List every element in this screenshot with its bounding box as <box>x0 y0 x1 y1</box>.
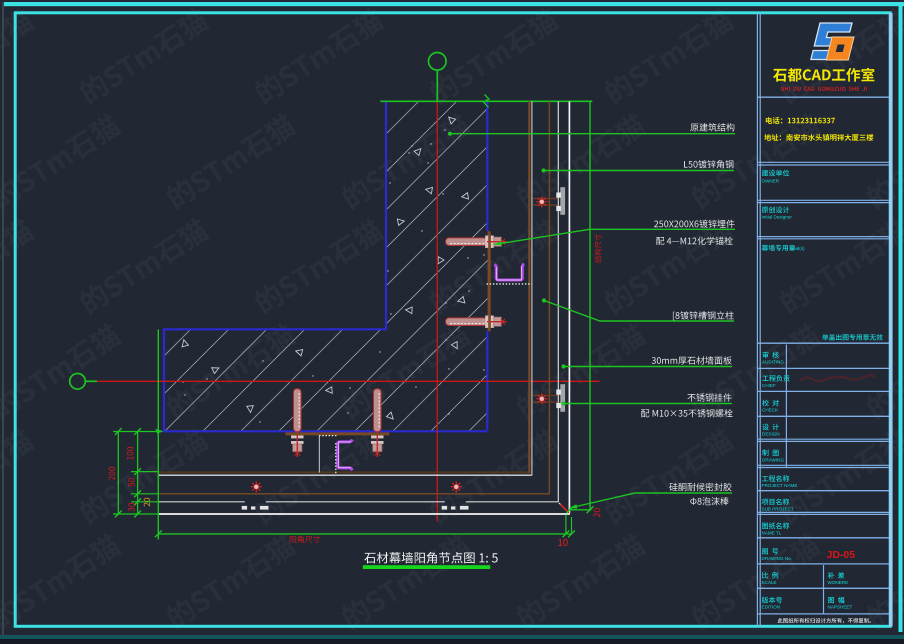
svg-text:DESIGN: DESIGN <box>762 432 780 437</box>
svg-text:PROJECT NAME: PROJECT NAME <box>762 483 798 488</box>
svg-text:WONERE: WONERE <box>828 580 849 585</box>
svg-text:JD-05: JD-05 <box>827 549 856 561</box>
svg-text:CHIEF: CHIEF <box>762 383 776 388</box>
svg-text:NAME TL: NAME TL <box>762 530 782 535</box>
svg-text:Seal(s): Seal(s) <box>790 246 805 251</box>
svg-text:NAPSHEET: NAPSHEET <box>828 605 853 610</box>
svg-text:SCALE: SCALE <box>762 580 777 585</box>
svg-text:OWNER: OWNER <box>762 179 780 184</box>
svg-text:CHECK: CHECK <box>762 408 779 413</box>
svg-text:DRAWING: DRAWING <box>762 457 784 462</box>
svg-text:SUB PROJECT: SUB PROJECT <box>762 506 794 511</box>
svg-text:DRAWING No.: DRAWING No. <box>762 556 792 561</box>
svg-text:Initial Designer: Initial Designer <box>762 214 793 219</box>
svg-text:EDITION: EDITION <box>762 605 781 610</box>
svg-text:AUDITING: AUDITING <box>762 360 784 365</box>
